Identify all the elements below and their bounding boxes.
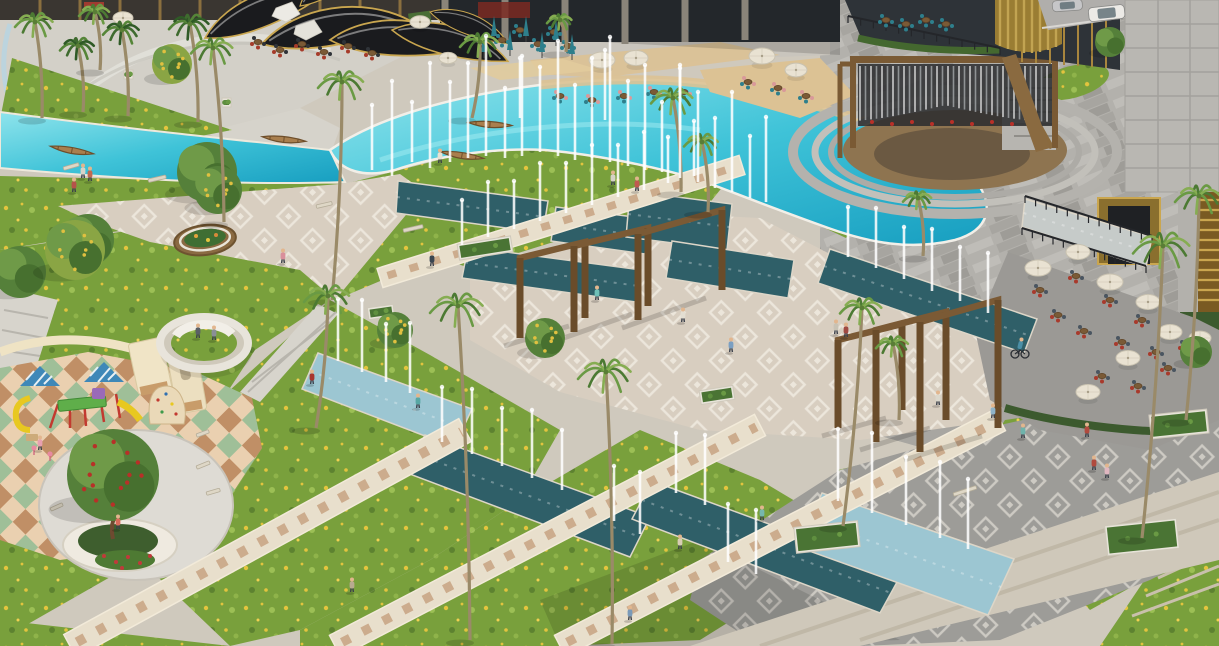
- person-leg: [682, 318, 683, 322]
- fountain-jet: [938, 460, 942, 538]
- table: [1118, 339, 1126, 344]
- chair: [560, 46, 564, 50]
- jet-splash: [754, 508, 758, 512]
- red-blossom: [127, 473, 131, 477]
- chair: [1172, 368, 1176, 372]
- chair: [1096, 370, 1100, 374]
- fountain-jet: [904, 455, 908, 525]
- person-leg: [636, 187, 637, 191]
- person-leg: [84, 174, 85, 178]
- person-shadow: [306, 384, 314, 387]
- person-torso: [1021, 428, 1026, 435]
- chair: [1140, 324, 1144, 328]
- red-blossom: [139, 473, 143, 477]
- chair: [376, 53, 380, 57]
- chair: [1052, 309, 1056, 313]
- palm-crown: [188, 22, 193, 27]
- jet-splash: [556, 39, 560, 43]
- palm-shadow: [76, 70, 104, 77]
- person-shadow: [434, 163, 442, 166]
- chair: [1078, 325, 1082, 329]
- person-leg: [638, 187, 639, 191]
- chair: [1034, 284, 1038, 288]
- chair: [294, 44, 298, 48]
- fountain-jet: [530, 408, 534, 478]
- yellow-blossom: [176, 65, 180, 69]
- chair: [800, 90, 804, 94]
- person-leg: [1095, 466, 1096, 470]
- yellow-blossom: [225, 188, 229, 192]
- table: [1134, 383, 1142, 388]
- person-head: [1021, 424, 1025, 428]
- jet-splash: [590, 143, 594, 147]
- table: [298, 41, 306, 46]
- person-torso: [834, 324, 839, 331]
- person-torso: [1092, 460, 1097, 467]
- person-leg: [89, 177, 90, 181]
- palm-shadow: [308, 300, 336, 307]
- chair: [918, 20, 922, 24]
- yellow-blossom: [162, 50, 166, 54]
- car: [1052, 0, 1083, 12]
- chair: [546, 32, 550, 36]
- person-leg: [684, 318, 685, 322]
- person-torso: [1085, 427, 1090, 434]
- palm-shadow: [684, 212, 712, 219]
- person-head: [678, 535, 682, 539]
- person-head: [635, 177, 639, 181]
- jet-splash: [703, 433, 707, 437]
- jet-splash: [748, 134, 752, 138]
- red-blossom: [119, 486, 123, 490]
- chair: [1160, 352, 1164, 356]
- person-torso: [196, 328, 201, 335]
- person-leg: [213, 336, 214, 340]
- yellow-blossom: [554, 331, 558, 335]
- yellow-blossom: [82, 253, 86, 257]
- fountain-jet: [573, 83, 577, 160]
- chair: [776, 92, 780, 96]
- jet-splash: [428, 61, 432, 65]
- fountain-jet: [846, 205, 850, 257]
- person-leg: [199, 334, 200, 338]
- person-torso: [416, 398, 421, 405]
- yellow-blossom: [161, 67, 165, 71]
- chair: [1088, 331, 1092, 335]
- person-leg: [117, 525, 118, 529]
- umbrella-pole-top: [1087, 391, 1089, 393]
- person-head: [681, 308, 685, 312]
- chair: [1134, 320, 1138, 324]
- palm-shadow: [18, 118, 46, 125]
- person-leg: [313, 380, 314, 384]
- jet-splash: [466, 61, 470, 65]
- person-shadow: [1017, 438, 1025, 441]
- chair: [1102, 300, 1106, 304]
- umbrella: [1025, 260, 1051, 281]
- umbrella-pole-top: [761, 55, 763, 57]
- pod-seating: [160, 317, 252, 378]
- person-leg: [1093, 466, 1094, 470]
- fountain-jet: [512, 179, 516, 229]
- person-torso: [310, 374, 315, 381]
- table: [1054, 312, 1062, 317]
- chair: [1050, 315, 1054, 319]
- person-shadow: [68, 192, 76, 195]
- palm-crown: [891, 342, 896, 347]
- chair: [740, 82, 744, 86]
- person-head: [310, 370, 314, 374]
- person-head: [729, 338, 733, 342]
- person-leg: [679, 545, 680, 549]
- yellow-blossom: [393, 340, 397, 344]
- flower-bed: [95, 550, 155, 570]
- person-head: [760, 506, 764, 510]
- fountain-jet: [666, 135, 670, 183]
- umbrella: [1076, 385, 1100, 404]
- chair: [1132, 380, 1136, 384]
- fountain-jet: [560, 428, 564, 490]
- jet-splash: [503, 86, 507, 90]
- person-shadow: [112, 529, 120, 532]
- jet-splash: [370, 103, 374, 107]
- person-leg: [41, 446, 42, 450]
- chair: [1114, 342, 1118, 346]
- chair: [532, 38, 536, 42]
- chair: [370, 57, 374, 61]
- table: [922, 17, 930, 22]
- table: [1036, 287, 1044, 292]
- chair: [930, 20, 934, 24]
- person-leg: [419, 404, 420, 408]
- yellow-blossom: [61, 229, 65, 233]
- umbrella: [1097, 274, 1123, 295]
- chair: [1148, 352, 1152, 356]
- person-head: [611, 171, 615, 175]
- rod-post-left: [850, 56, 856, 148]
- chair: [558, 32, 562, 36]
- palm-shadow: [292, 428, 320, 435]
- chair: [938, 24, 942, 28]
- fountain-jet: [986, 251, 990, 313]
- person-shadow: [1081, 437, 1089, 440]
- fountain-jet: [626, 79, 630, 166]
- chair: [880, 14, 884, 18]
- person-shadow: [1088, 470, 1096, 473]
- red-blossom: [111, 502, 115, 506]
- yellow-blossom: [399, 320, 403, 324]
- chair: [514, 24, 518, 28]
- person-head: [595, 286, 599, 290]
- person-shadow: [987, 418, 995, 421]
- car-glass: [1097, 7, 1116, 19]
- yellow-blossom: [176, 53, 180, 57]
- chair: [1076, 331, 1080, 335]
- fountain-jet: [538, 161, 542, 221]
- umbrella: [1116, 351, 1140, 370]
- chair: [770, 88, 774, 92]
- jet-splash: [902, 225, 906, 229]
- umbrella-pole-top: [1147, 301, 1149, 303]
- jet-splash: [938, 460, 942, 464]
- fountain-jet: [538, 65, 542, 152]
- red-blossom: [136, 460, 140, 464]
- person-shadow: [346, 592, 354, 595]
- chair: [584, 100, 588, 104]
- chair: [1116, 336, 1120, 340]
- person-torso: [116, 519, 121, 526]
- jet-splash: [616, 143, 620, 147]
- person-leg: [75, 188, 76, 192]
- chair: [272, 50, 276, 54]
- palm-crown: [76, 44, 81, 49]
- fountain-jet: [390, 79, 394, 176]
- palm-crown: [860, 306, 865, 311]
- chair: [252, 36, 256, 40]
- chair: [596, 100, 600, 104]
- person-head: [88, 167, 92, 171]
- person-head: [834, 320, 838, 324]
- yellow-blossom: [170, 75, 174, 79]
- fountain-jet: [466, 61, 470, 158]
- jet-splash: [660, 100, 664, 104]
- chair: [884, 24, 888, 28]
- fountain-jet: [486, 180, 490, 237]
- chair: [890, 20, 894, 24]
- person-head: [212, 326, 216, 330]
- chair: [1106, 376, 1110, 380]
- person-shadow: [412, 408, 420, 411]
- person-shadow: [1101, 478, 1109, 481]
- chair: [346, 50, 350, 54]
- fountain-jet: [410, 100, 414, 162]
- person-torso: [635, 181, 640, 188]
- yellow-blossom: [181, 57, 185, 61]
- yellow-blossom: [533, 336, 537, 340]
- person-leg: [91, 177, 92, 181]
- chair: [274, 44, 278, 48]
- chair: [1136, 314, 1140, 318]
- red-blossom: [94, 498, 98, 502]
- chair: [1074, 280, 1078, 284]
- fountain-jet: [748, 134, 752, 198]
- person-leg: [1024, 434, 1025, 438]
- palm-shadow: [200, 222, 228, 229]
- person-shadow: [830, 334, 838, 337]
- red-blossom: [82, 487, 86, 491]
- person-head: [991, 404, 995, 408]
- chair: [940, 18, 944, 22]
- umbrella: [439, 52, 457, 67]
- fountain-jet: [870, 431, 874, 513]
- person-leg: [439, 159, 440, 163]
- palm-crown: [916, 196, 921, 201]
- chair: [284, 50, 288, 54]
- chair: [564, 96, 568, 100]
- chair: [1114, 300, 1118, 304]
- chair: [1108, 304, 1112, 308]
- person-leg: [197, 334, 198, 338]
- red-blossom: [88, 473, 92, 477]
- red-blossom: [91, 483, 95, 487]
- chair: [1056, 319, 1060, 323]
- person-shadow: [624, 620, 632, 623]
- chair: [1068, 276, 1072, 280]
- jet-splash: [958, 245, 962, 249]
- table: [942, 21, 950, 26]
- person-leg: [73, 188, 74, 192]
- person-leg: [1106, 474, 1107, 478]
- person-head: [196, 324, 200, 328]
- person-shadow: [607, 185, 615, 188]
- person-leg: [311, 380, 312, 384]
- palm-shadow: [104, 116, 132, 123]
- chair: [1100, 380, 1104, 384]
- jet-splash: [538, 65, 542, 69]
- fountain-jet: [370, 103, 374, 170]
- chair: [1062, 315, 1066, 319]
- jet-splash: [642, 130, 646, 134]
- chair: [1146, 320, 1150, 324]
- fountain-jet: [764, 115, 768, 202]
- person-leg: [353, 588, 354, 592]
- person-leg: [215, 336, 216, 340]
- person-shadow: [208, 340, 216, 343]
- jet-splash: [408, 321, 412, 325]
- red-blossom: [91, 462, 95, 466]
- table: [516, 27, 524, 32]
- jet-splash: [384, 322, 388, 326]
- person-head: [430, 252, 434, 256]
- person-head: [416, 394, 420, 398]
- chair: [256, 46, 260, 50]
- fountain-jet: [590, 56, 594, 158]
- palm-shadow: [59, 112, 87, 119]
- hedge-tuft: [226, 100, 231, 105]
- person-leg: [631, 616, 632, 620]
- person-leg: [433, 262, 434, 266]
- cyclist-head: [1020, 338, 1024, 342]
- chair: [746, 86, 750, 90]
- palm-shadow: [657, 192, 685, 199]
- chair: [512, 30, 516, 34]
- jet-splash: [564, 161, 568, 165]
- table: [1072, 273, 1080, 278]
- chair: [518, 34, 522, 38]
- yellow-blossom: [160, 62, 164, 66]
- chair: [586, 94, 590, 98]
- umbrella-pole-top: [419, 21, 421, 23]
- person-leg: [119, 525, 120, 529]
- person-leg: [351, 588, 352, 592]
- person-torso: [628, 610, 633, 617]
- chair: [342, 40, 346, 44]
- person-torso: [88, 171, 93, 178]
- jet-splash: [713, 116, 717, 120]
- jet-splash: [870, 431, 874, 435]
- person-torso: [611, 175, 616, 182]
- jet-splash: [573, 83, 577, 87]
- person-shadow: [756, 520, 764, 523]
- yellow-blossom: [204, 188, 208, 192]
- umbrella-pole-top: [1109, 281, 1111, 283]
- red-blossom: [125, 451, 129, 455]
- palm-crown: [700, 140, 705, 145]
- jet-splash: [518, 56, 522, 60]
- person-leg: [763, 516, 764, 520]
- person-torso: [1105, 468, 1110, 475]
- planter-box: [222, 98, 231, 107]
- person-leg: [82, 174, 83, 178]
- chair: [1094, 376, 1098, 380]
- umbrella: [410, 16, 430, 32]
- chair: [340, 46, 344, 50]
- table: [368, 50, 376, 55]
- jet-splash: [590, 56, 594, 60]
- palm-shadow: [1162, 420, 1190, 427]
- person-torso: [678, 539, 683, 546]
- person-shadow: [674, 549, 682, 552]
- palm-crown: [456, 304, 461, 309]
- jet-splash: [836, 427, 840, 431]
- chair: [300, 48, 304, 52]
- person-head: [628, 606, 632, 610]
- umbrella-pole-top: [635, 57, 637, 59]
- fountain-jet: [428, 61, 432, 168]
- chair: [296, 38, 300, 42]
- person-head: [281, 249, 285, 253]
- chair: [306, 44, 310, 48]
- fountain-jet: [500, 406, 504, 466]
- fountain-jet: [726, 502, 730, 562]
- person-leg: [992, 414, 993, 418]
- jet-splash: [470, 387, 474, 391]
- chair: [352, 46, 356, 50]
- chair: [900, 18, 904, 22]
- chair: [316, 52, 320, 56]
- chair: [910, 24, 914, 28]
- person-leg: [937, 401, 938, 405]
- jet-splash: [966, 477, 970, 481]
- fountain-jet: [874, 206, 878, 268]
- jet-splash: [696, 90, 700, 94]
- chair: [278, 54, 282, 58]
- person-torso: [438, 153, 443, 160]
- jet-splash: [986, 251, 990, 255]
- fountain-jet: [518, 56, 522, 118]
- yellow-blossom: [399, 331, 403, 335]
- person-shadow: [426, 266, 434, 269]
- chair: [944, 28, 948, 32]
- fountain-jet: [470, 387, 474, 454]
- table: [1106, 297, 1114, 302]
- jet-splash: [612, 464, 616, 468]
- umbrella: [1136, 295, 1160, 314]
- chair: [1162, 362, 1166, 366]
- fountain-jet: [902, 225, 906, 279]
- jet-splash: [390, 79, 394, 83]
- fountain-jet: [564, 161, 568, 213]
- person-leg: [845, 333, 846, 337]
- chair: [772, 82, 776, 86]
- red-blossom: [111, 440, 115, 444]
- chair: [1150, 346, 1154, 350]
- person-leg: [1022, 434, 1023, 438]
- jet-splash: [484, 34, 488, 38]
- fountain-jet: [966, 477, 970, 549]
- person-torso: [760, 510, 765, 517]
- person-head: [438, 149, 442, 153]
